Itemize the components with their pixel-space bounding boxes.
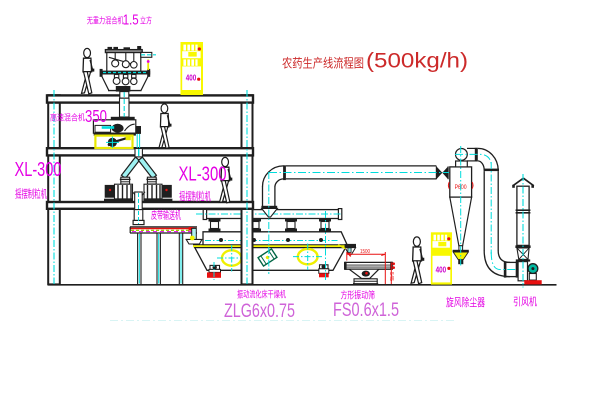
svg-text:1500: 1500	[360, 249, 370, 255]
svg-text:振动流化床干燥机: 振动流化床干燥机	[237, 289, 286, 300]
svg-text:400: 400	[436, 265, 447, 275]
svg-text:无重力混合机: 无重力混合机	[87, 16, 124, 26]
svg-text:XL-300: XL-300	[15, 158, 62, 181]
svg-text:摇摆制粒机: 摇摆制粒机	[179, 189, 211, 203]
svg-text:(500kg/h): (500kg/h)	[366, 50, 468, 73]
svg-text:545: 545	[388, 272, 394, 281]
svg-text:FS0.6x1.5: FS0.6x1.5	[333, 299, 399, 321]
svg-text:400: 400	[186, 72, 197, 82]
svg-text:农药生产线流程图: 农药生产线流程图	[282, 56, 364, 71]
svg-text:摇摆制粒机: 摇摆制粒机	[15, 187, 47, 201]
svg-text:XL-300: XL-300	[179, 162, 227, 185]
svg-text:立方: 立方	[140, 16, 152, 26]
svg-text:引风机: 引风机	[513, 295, 537, 308]
svg-text:1.5: 1.5	[123, 13, 139, 29]
svg-text:ZLG6x0.75: ZLG6x0.75	[224, 300, 295, 322]
svg-text:皮带输送机: 皮带输送机	[151, 209, 181, 222]
svg-text:高速混合机: 高速混合机	[50, 113, 85, 123]
svg-text:旋风除尘器: 旋风除尘器	[446, 295, 485, 309]
svg-text:350: 350	[85, 106, 107, 126]
